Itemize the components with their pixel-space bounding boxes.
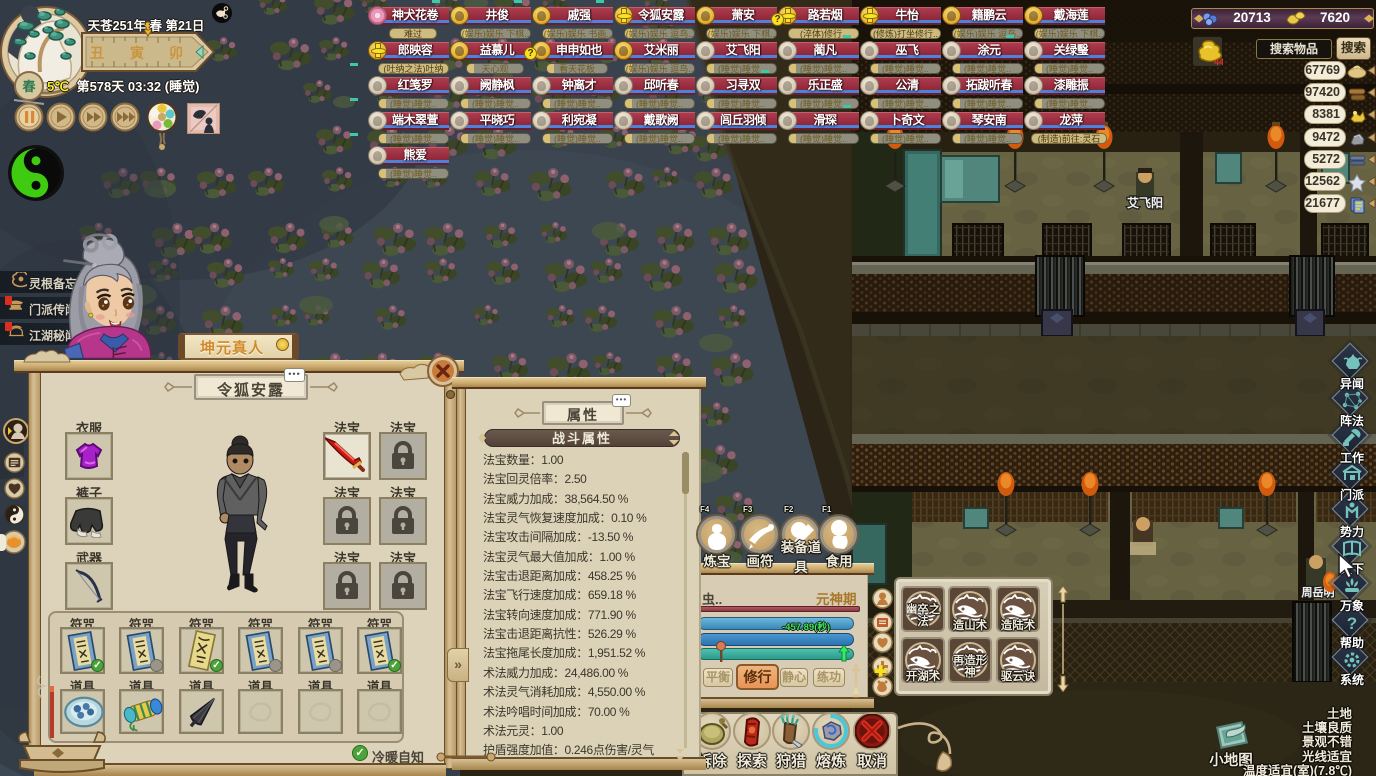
svg-text:44: 44 (1214, 57, 1223, 67)
svg-text:春: 春 (21, 79, 36, 94)
svg-text:丑: 丑 (90, 45, 104, 61)
svg-text:?: ? (1347, 614, 1357, 633)
svg-text:卯: 卯 (169, 45, 183, 61)
svg-text:寅: 寅 (130, 45, 144, 61)
